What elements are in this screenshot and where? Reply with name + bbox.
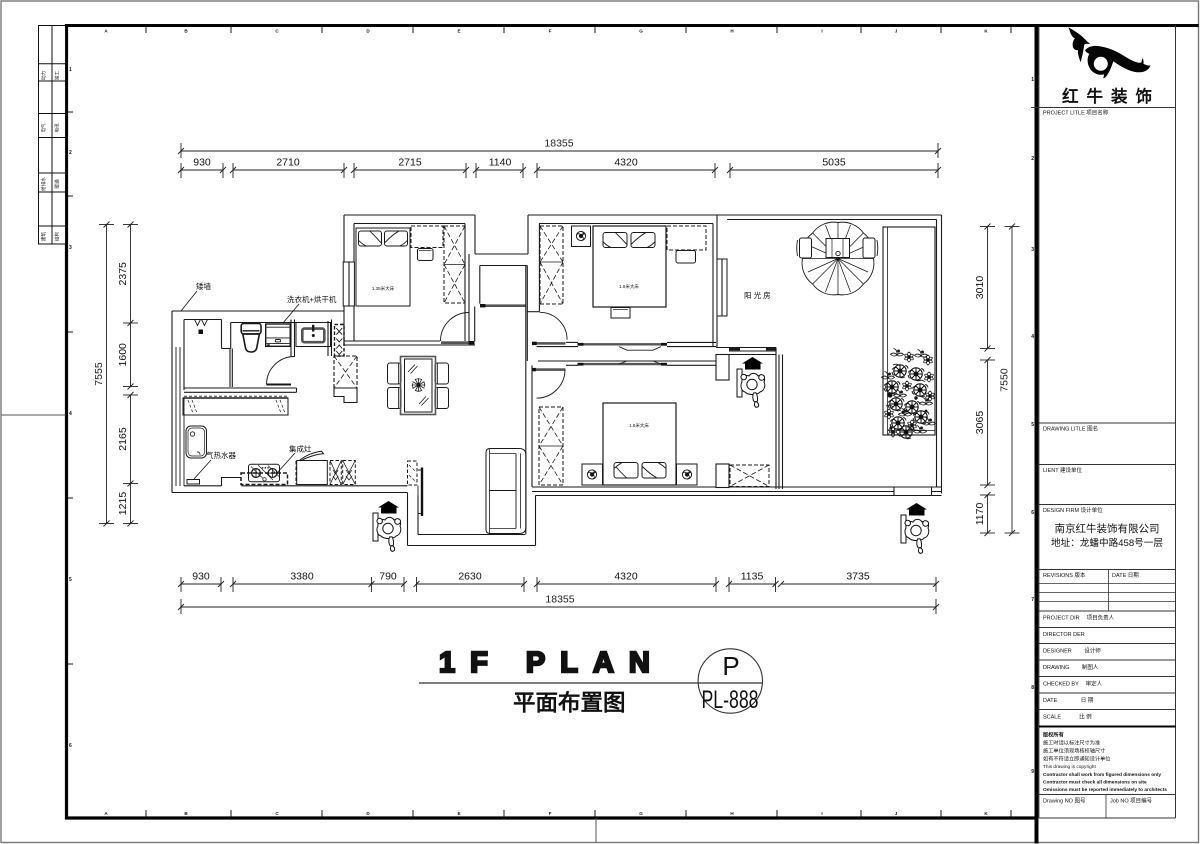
svg-text:1F PLAN: 1F PLAN <box>439 647 665 679</box>
svg-text:2710: 2710 <box>276 157 300 169</box>
svg-text:1135: 1135 <box>741 571 764 583</box>
svg-text:3: 3 <box>69 245 72 251</box>
svg-text:1.8米大床: 1.8米大床 <box>629 422 649 429</box>
svg-text:G: G <box>639 29 643 34</box>
svg-text:Contractor must check all dime: Contractor must check all dimensions on … <box>1043 780 1147 786</box>
svg-text:动力: 动力 <box>40 71 47 81</box>
svg-text:I: I <box>821 29 822 34</box>
svg-text:F: F <box>549 29 552 34</box>
svg-text:DRAWING LITLE 图名: DRAWING LITLE 图名 <box>1043 425 1098 433</box>
svg-text:建筑: 建筑 <box>40 232 47 242</box>
svg-text:930: 930 <box>192 571 210 583</box>
svg-text:气热水器: 气热水器 <box>206 450 236 460</box>
svg-text:SCALE 比 例: SCALE 比 例 <box>1043 713 1092 721</box>
svg-text:DESIGN FIRM 设计单位: DESIGN FIRM 设计单位 <box>1043 506 1103 514</box>
svg-text:2630: 2630 <box>458 571 482 583</box>
svg-text:4320: 4320 <box>614 571 638 583</box>
svg-text:电讯: 电讯 <box>54 123 61 133</box>
svg-text:结构: 结构 <box>54 232 61 242</box>
svg-text:G: G <box>639 811 643 816</box>
svg-text:施工单位须现场核校轴尺寸: 施工单位须现场核校轴尺寸 <box>1043 747 1105 755</box>
svg-text:7: 7 <box>1031 597 1034 603</box>
svg-text:2: 2 <box>69 150 72 156</box>
svg-text:1: 1 <box>1031 77 1034 83</box>
svg-text:P: P <box>722 651 739 681</box>
svg-text:LIENT 建设单位: LIENT 建设单位 <box>1043 466 1083 474</box>
svg-text:1140: 1140 <box>489 157 512 169</box>
svg-text:6: 6 <box>69 743 72 749</box>
svg-text:DIRECTOR DER: DIRECTOR DER <box>1043 632 1085 638</box>
svg-text:暖通: 暖通 <box>54 179 61 189</box>
svg-text:平面布置图: 平面布置图 <box>513 690 626 716</box>
svg-text:Contractor shall work from fig: Contractor shall work from figured dimen… <box>1043 772 1161 778</box>
svg-text:3: 3 <box>1031 247 1034 253</box>
svg-text:3735: 3735 <box>846 571 870 583</box>
svg-text:7550: 7550 <box>999 368 1011 392</box>
svg-text:集成灶: 集成灶 <box>289 444 312 454</box>
svg-text:2165: 2165 <box>117 427 129 451</box>
svg-text:7555: 7555 <box>93 362 105 386</box>
svg-text:Omissions must be reported imm: Omissions must be reported immediately t… <box>1043 787 1167 793</box>
svg-text:3010: 3010 <box>974 276 986 300</box>
svg-text:红牛装饰: 红牛装饰 <box>1062 86 1160 106</box>
svg-text:J: J <box>895 811 898 816</box>
svg-text:电气: 电气 <box>40 123 46 133</box>
svg-text:1.35米大床: 1.35米大床 <box>372 285 395 292</box>
svg-text:南京红牛装饰有限公司: 南京红牛装饰有限公司 <box>1055 522 1160 535</box>
svg-text:1600: 1600 <box>117 343 129 367</box>
svg-text:1215: 1215 <box>117 492 129 516</box>
svg-text:DESIGNER 设计师: DESIGNER 设计师 <box>1043 647 1101 655</box>
svg-text:2715: 2715 <box>398 157 422 169</box>
svg-text:2: 2 <box>1031 156 1034 162</box>
svg-text:1: 1 <box>69 67 72 73</box>
svg-text:矮墙: 矮墙 <box>196 281 211 291</box>
svg-text:DATE 日 期: DATE 日 期 <box>1043 697 1094 704</box>
svg-text:Job NO 项目编号: Job NO 项目编号 <box>1110 797 1153 805</box>
svg-text:PROJECT LITLE 项目名称: PROJECT LITLE 项目名称 <box>1043 109 1109 117</box>
svg-text:J: J <box>895 29 898 34</box>
svg-text:4: 4 <box>1031 334 1034 340</box>
svg-text:4: 4 <box>69 411 72 417</box>
svg-text:5: 5 <box>1031 422 1034 428</box>
svg-text:930: 930 <box>193 157 211 169</box>
svg-text:2375: 2375 <box>117 262 129 286</box>
svg-text:CHECKED BY 审定人: CHECKED BY 审定人 <box>1043 680 1103 688</box>
svg-text:790: 790 <box>379 571 397 583</box>
svg-text:5035: 5035 <box>822 157 846 169</box>
svg-text:地址：龙蟠中路458号一层: 地址：龙蟠中路458号一层 <box>1051 537 1163 549</box>
svg-text:竣工: 竣工 <box>54 71 61 81</box>
svg-text:如有不符请立即通知设计单位: 如有不符请立即通知设计单位 <box>1043 755 1110 763</box>
svg-text:给排水: 给排水 <box>40 177 47 191</box>
svg-text:3065: 3065 <box>974 411 986 435</box>
svg-text:6: 6 <box>1031 510 1034 516</box>
svg-text:版权所有: 版权所有 <box>1042 731 1064 739</box>
svg-text:阳 光 房: 阳 光 房 <box>744 290 771 300</box>
svg-text:1170: 1170 <box>974 503 986 526</box>
svg-text:DATE 日期: DATE 日期 <box>1112 572 1139 579</box>
svg-text:3380: 3380 <box>290 571 314 583</box>
svg-text:9: 9 <box>1031 769 1034 775</box>
svg-text:4320: 4320 <box>614 157 638 169</box>
svg-text:18355: 18355 <box>545 594 574 606</box>
svg-text:PROJECT DIR 项目负责人: PROJECT DIR 项目负责人 <box>1043 614 1115 622</box>
svg-text:PL-888: PL-888 <box>702 686 759 714</box>
svg-text:5: 5 <box>69 577 72 583</box>
svg-text:REVISIONS 版本: REVISIONS 版本 <box>1043 571 1086 579</box>
svg-text:Drawing NO 图号: Drawing NO 图号 <box>1043 797 1086 805</box>
svg-text:8: 8 <box>1031 685 1034 691</box>
svg-text:施工时请以标注尺寸为准: 施工时请以标注尺寸为准 <box>1043 739 1100 747</box>
svg-text:This drawing is copyright: This drawing is copyright <box>1043 764 1096 770</box>
svg-text:1.8米大床: 1.8米大床 <box>619 283 639 290</box>
svg-text:18355: 18355 <box>544 138 573 150</box>
svg-text:E: E <box>457 811 460 816</box>
svg-text:I: I <box>821 811 822 816</box>
svg-text:洗衣机+烘干机: 洗衣机+烘干机 <box>287 294 337 304</box>
svg-text:E: E <box>457 29 460 34</box>
svg-text:F: F <box>549 811 552 816</box>
svg-text:DRAWING 制图人: DRAWING 制图人 <box>1043 663 1099 671</box>
